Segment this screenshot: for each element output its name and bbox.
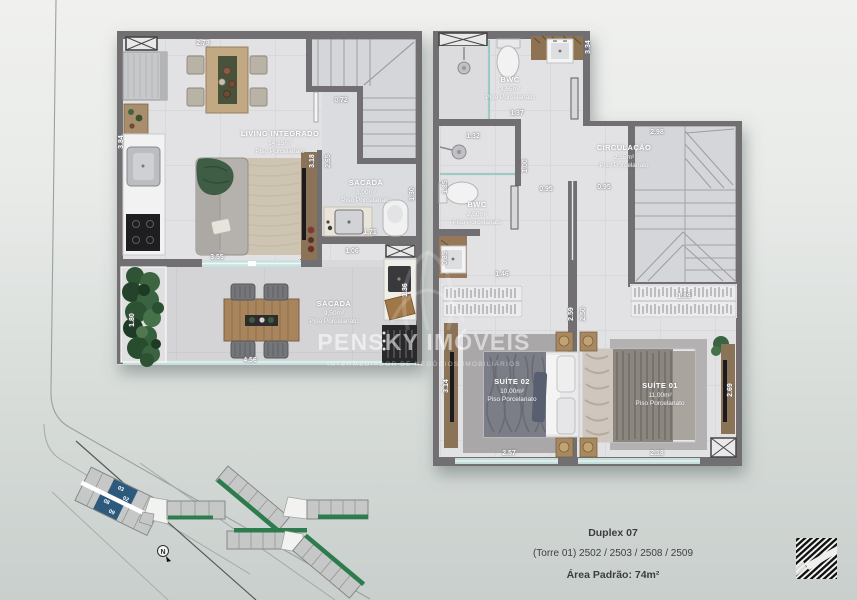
svg-text:Piso Porcelanato: Piso Porcelanato (635, 400, 685, 407)
svg-text:2.65: 2.65 (325, 154, 332, 168)
svg-text:0.72: 0.72 (334, 97, 348, 104)
svg-text:Piso Porcelanato: Piso Porcelanato (341, 197, 391, 204)
svg-text:SACADA: SACADA (317, 299, 352, 308)
svg-text:2,50m²: 2,50m² (467, 211, 488, 218)
svg-text:SUÍTE 02: SUÍTE 02 (494, 377, 530, 386)
svg-text:11,00m²: 11,00m² (648, 392, 672, 399)
svg-text:Piso Porcelanato: Piso Porcelanato (487, 396, 537, 403)
svg-text:INTERMEDIADOR DE NEGÓCIOS IMOB: INTERMEDIADOR DE NEGÓCIOS IMOBILIÁRIOS (327, 359, 521, 368)
svg-text:CIRCULAÇÃO: CIRCULAÇÃO (597, 143, 651, 152)
svg-text:LIVING INTEGRADO: LIVING INTEGRADO (241, 129, 320, 138)
svg-text:(Torre 01) 2502 / 2503 / 2508: (Torre 01) 2502 / 2503 / 2508 / 2509 (533, 548, 694, 559)
svg-text:4.56: 4.56 (243, 357, 257, 364)
svg-text:0.95: 0.95 (597, 184, 611, 191)
svg-text:1.71: 1.71 (363, 229, 377, 236)
svg-text:Piso Porcelanato: Piso Porcelanato (255, 148, 305, 155)
svg-text:1.85: 1.85 (442, 180, 449, 194)
svg-text:0.95: 0.95 (539, 186, 553, 193)
svg-text:2,55m²: 2,55m² (614, 154, 635, 161)
svg-text:3.14: 3.14 (443, 379, 450, 393)
svg-text:1.80: 1.80 (129, 313, 136, 327)
svg-text:2.50: 2.50 (580, 307, 587, 321)
svg-text:3,65m²: 3,65m² (500, 86, 521, 93)
svg-text:Piso Porcelanato: Piso Porcelanato (485, 94, 535, 101)
svg-text:2.69: 2.69 (727, 383, 734, 397)
svg-text:2.59: 2.59 (568, 307, 575, 321)
svg-text:Piso Porcelanato: Piso Porcelanato (309, 318, 359, 325)
svg-text:PENSKY IMÓVEIS: PENSKY IMÓVEIS (317, 328, 530, 355)
svg-text:3,00m²: 3,00m² (356, 189, 377, 196)
svg-text:10,00m²: 10,00m² (500, 388, 525, 395)
svg-text:BWC: BWC (500, 75, 519, 84)
svg-text:3.55: 3.55 (210, 254, 224, 261)
svg-text:1.46: 1.46 (495, 271, 509, 278)
svg-text:Piso Porcelanato: Piso Porcelanato (452, 219, 502, 226)
svg-text:9,50m²: 9,50m² (324, 310, 345, 317)
svg-text:SACADA: SACADA (349, 178, 384, 187)
svg-text:2.79: 2.79 (196, 40, 210, 47)
svg-text:1.06: 1.06 (345, 248, 359, 255)
svg-text:14,15m²: 14,15m² (268, 140, 293, 147)
svg-text:SUÍTE 01: SUÍTE 01 (642, 381, 678, 390)
svg-text:Área Padrão: 74m²: Área Padrão: 74m² (567, 568, 660, 581)
svg-text:2.98: 2.98 (650, 129, 664, 136)
svg-text:N: N (160, 549, 165, 556)
svg-text:Duplex 07: Duplex 07 (588, 527, 638, 539)
svg-text:1.37: 1.37 (510, 110, 524, 117)
svg-text:3.18: 3.18 (309, 154, 316, 168)
svg-text:1.32: 1.32 (466, 133, 480, 140)
svg-text:Piso Porcelanato: Piso Porcelanato (599, 162, 649, 169)
svg-text:3.84: 3.84 (118, 135, 125, 149)
svg-text:2.57: 2.57 (502, 450, 516, 457)
svg-text:1.30: 1.30 (409, 187, 416, 201)
svg-text:3.34: 3.34 (585, 40, 592, 54)
svg-text:2.18: 2.18 (650, 450, 664, 457)
svg-text:1.89: 1.89 (677, 293, 691, 300)
svg-text:1.00: 1.00 (522, 159, 529, 173)
svg-text:BWC: BWC (467, 200, 486, 209)
